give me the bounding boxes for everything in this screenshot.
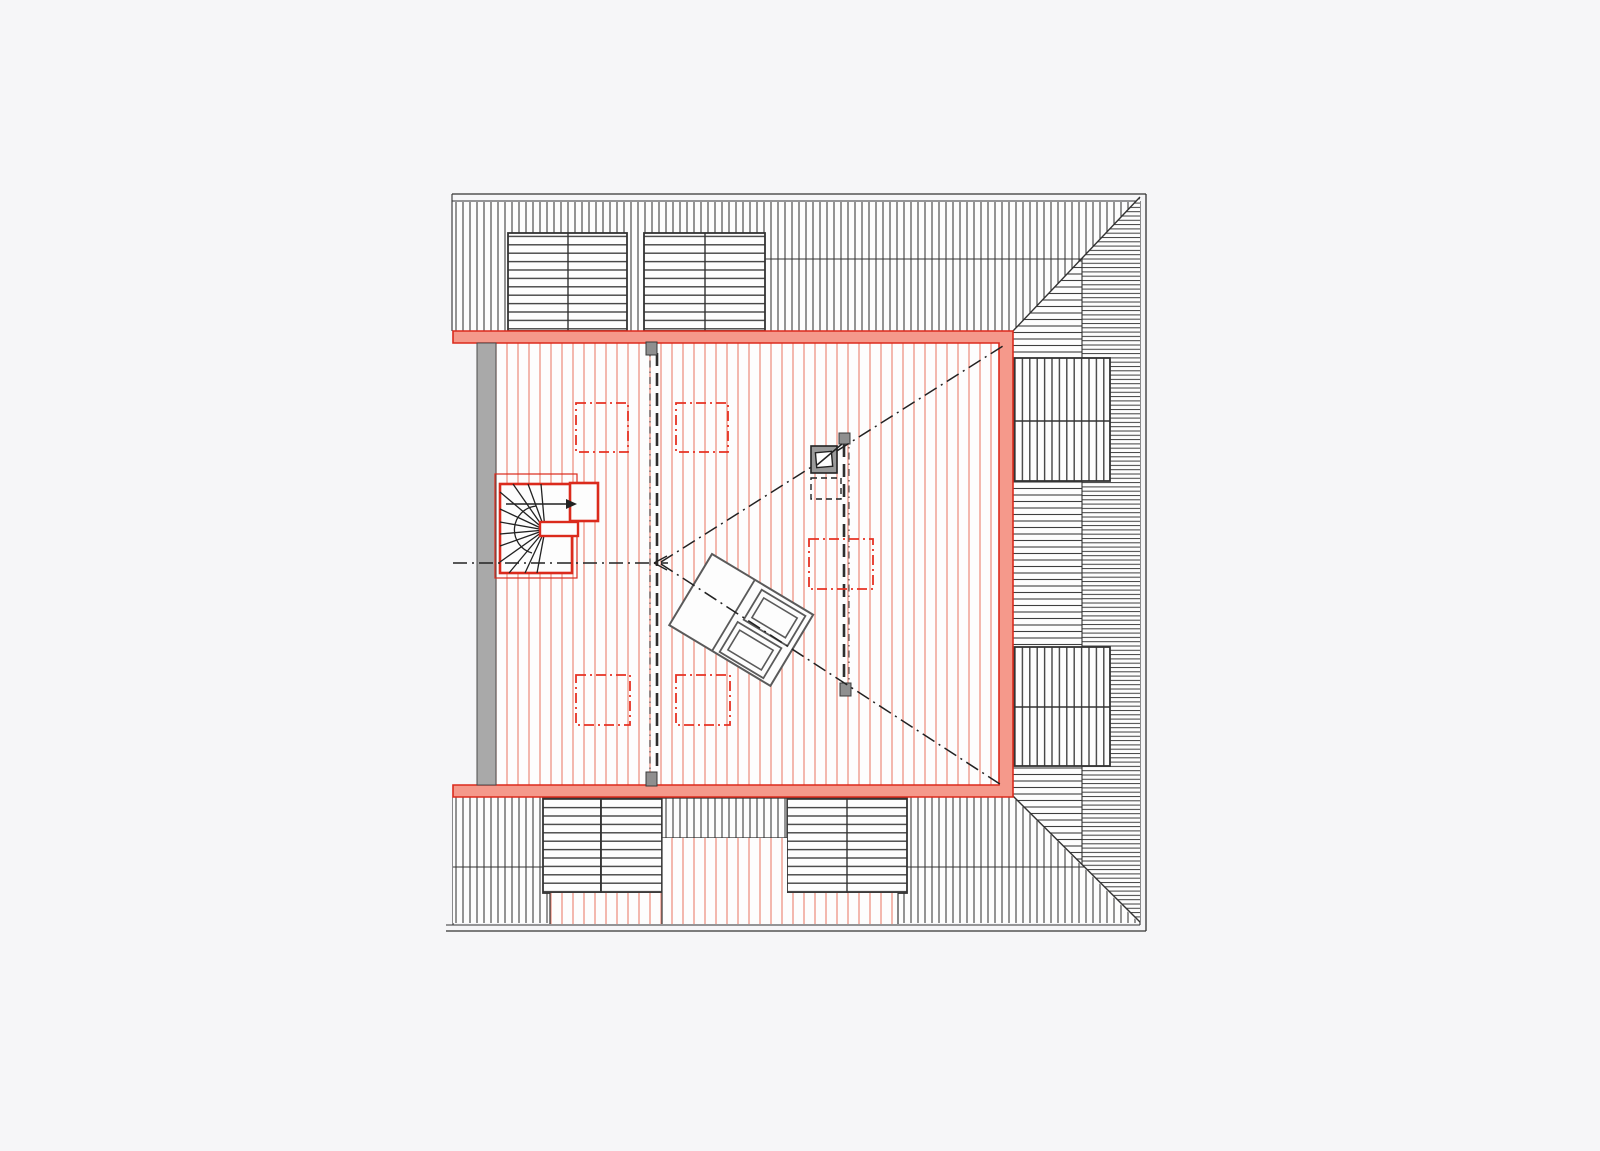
dormer-front [662,798,787,838]
dormer-roof-salmon-low [550,893,898,924]
attic-floor-plan-page [0,0,1600,1151]
roof-east-edge-strip [1082,197,1140,922]
attic-floor-plan-drawing [0,0,1600,1151]
beam-post-left-top [646,342,657,355]
beam-post-right-bottom [840,683,851,696]
gable-wall-gray [477,343,496,785]
plan-root [446,194,1146,931]
dormer-roof-salmon-mid [662,838,787,894]
skylight-east-upper [1014,358,1110,481]
skylight-south-d [601,798,662,893]
stair-landing [570,483,598,521]
beam-post-right-top [839,433,850,444]
stair-newel-notch [540,522,578,536]
beam-post-left-bottom [646,772,657,786]
skylight-south-c [543,798,601,893]
